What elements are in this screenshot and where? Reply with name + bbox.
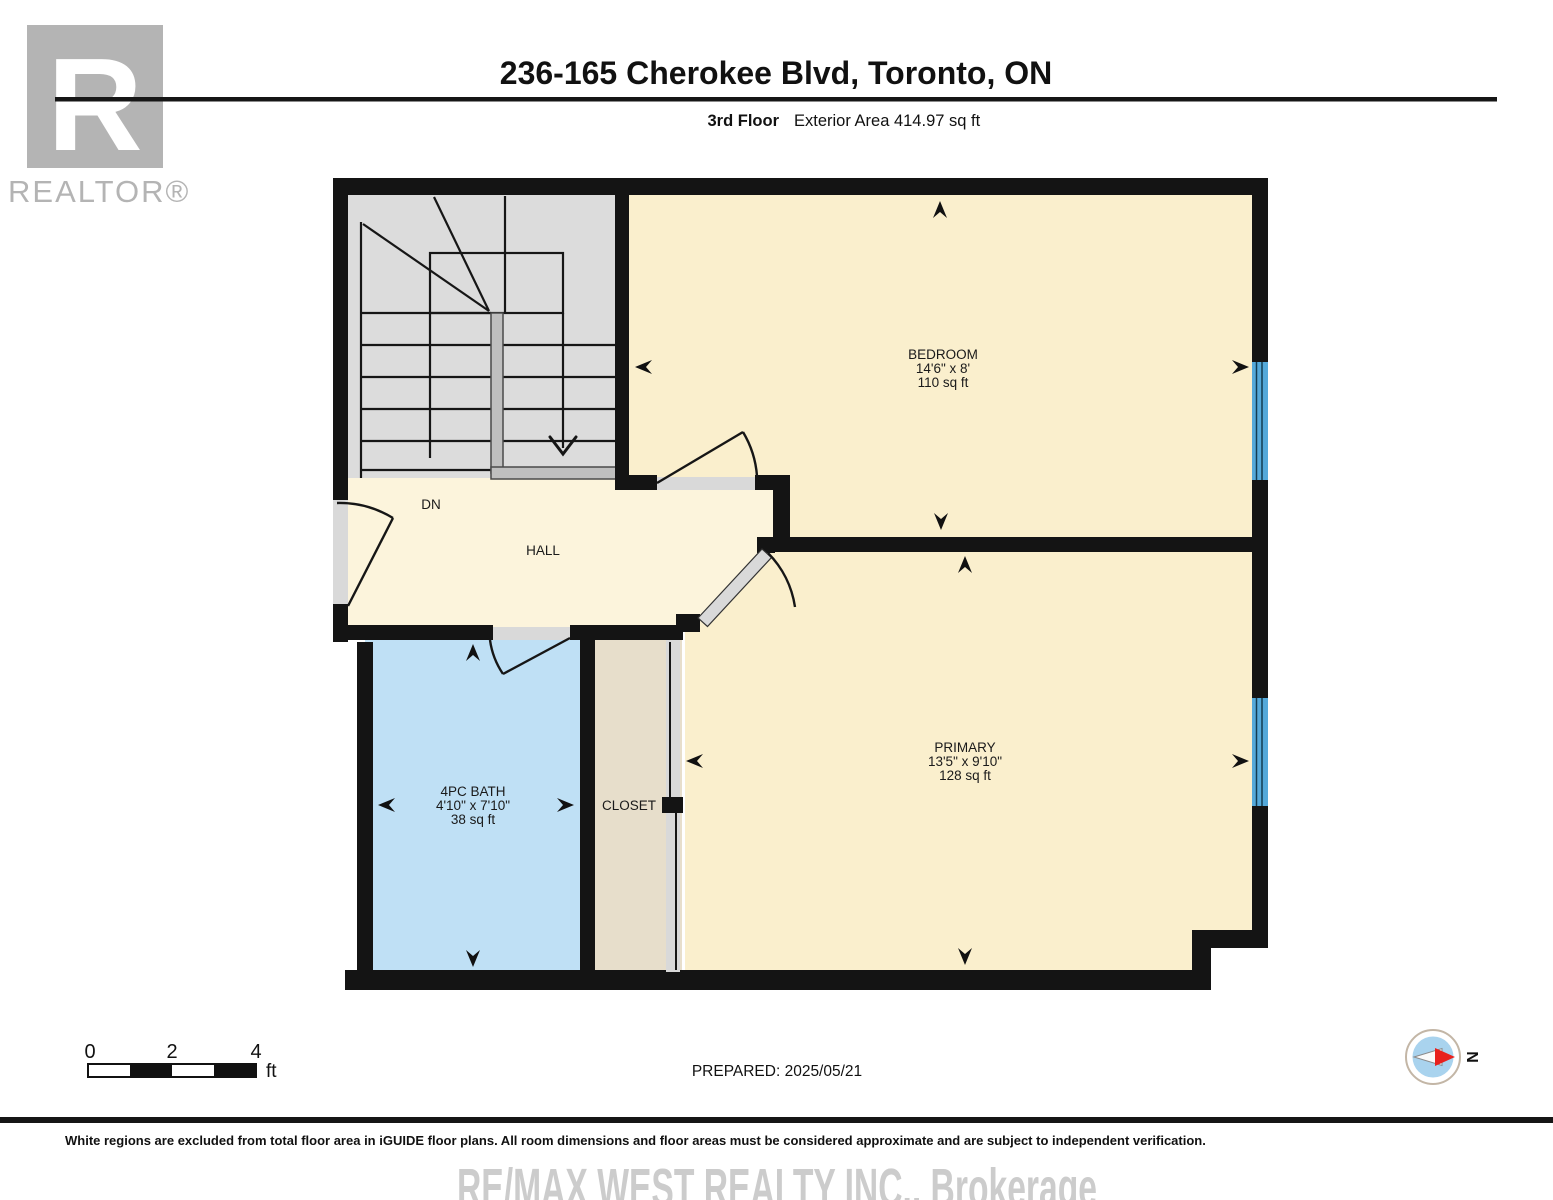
floor-plan-canvas: R REALTOR® 236-165 Cherokee Blvd, Toront… [0, 0, 1553, 1200]
stair-railing-bottom [491, 467, 618, 479]
closet-door-handle [662, 797, 683, 813]
floor-label: 3rd Floor [707, 112, 779, 130]
primary-name-label: PRIMARY [934, 740, 995, 755]
exterior-area-label: Exterior Area 414.97 sq ft [794, 112, 981, 130]
stairs-dn-label: DN [421, 497, 441, 512]
bedroom-area-label: 110 sq ft [918, 375, 969, 390]
scale-bar-segment [214, 1064, 256, 1077]
bedroom-window [1252, 362, 1268, 480]
brokerage-watermark: RE/MAX WEST REALTY INC., Brokerage [457, 1158, 1097, 1200]
stair-railing [491, 313, 503, 473]
bedroom-dims-label: 14'6" x 8' [916, 361, 970, 376]
scale-tick-0: 0 [84, 1041, 95, 1063]
compass-north-label: N [1463, 1051, 1480, 1063]
bath-dims-label: 4'10" x 7'10" [436, 798, 510, 813]
prepared-date-label: PREPARED: 2025/05/21 [692, 1063, 862, 1080]
disclaimer-text: White regions are excluded from total fl… [65, 1133, 1206, 1148]
bath-area-label: 38 sq ft [451, 812, 496, 827]
scale-tick-4: 4 [250, 1041, 261, 1063]
scale-unit-label: ft [266, 1061, 277, 1082]
primary-area-label: 128 sq ft [939, 768, 991, 783]
floor-plan-page: R REALTOR® 236-165 Cherokee Blvd, Toront… [0, 0, 1553, 1200]
compass: N [1406, 1030, 1480, 1084]
realtor-logo-label: REALTOR® [8, 174, 190, 209]
hall-label: HALL [526, 543, 560, 558]
primary-dims-label: 13'5" x 9'10" [928, 754, 1002, 769]
scale-tick-2: 2 [166, 1041, 177, 1063]
bath-door-opening [493, 627, 570, 640]
realtor-logo-letter: R [47, 31, 142, 178]
bath-name-label: 4PC BATH [440, 784, 505, 799]
footer-rule [0, 1117, 1553, 1123]
page-title: 236-165 Cherokee Blvd, Toronto, ON [500, 55, 1052, 91]
hall-door-opening [333, 500, 348, 606]
floor-plan: BEDROOM 14'6" x 8' 110 sq ft PRIMARY 13'… [333, 178, 1268, 990]
scale-bar: 0 2 4 ft [84, 1041, 277, 1082]
closet-label: CLOSET [602, 798, 656, 813]
primary-window [1252, 698, 1268, 806]
room-hall [348, 478, 773, 627]
bedroom-name-label: BEDROOM [908, 347, 978, 362]
header-rule [55, 97, 1497, 102]
realtor-logo: R REALTOR® [8, 25, 190, 209]
footer: 0 2 4 ft PREPARED: 2025/05/21 N RE/MAX W… [0, 1030, 1553, 1200]
bedroom-door-opening [657, 477, 757, 490]
scale-bar-segment [130, 1064, 172, 1077]
